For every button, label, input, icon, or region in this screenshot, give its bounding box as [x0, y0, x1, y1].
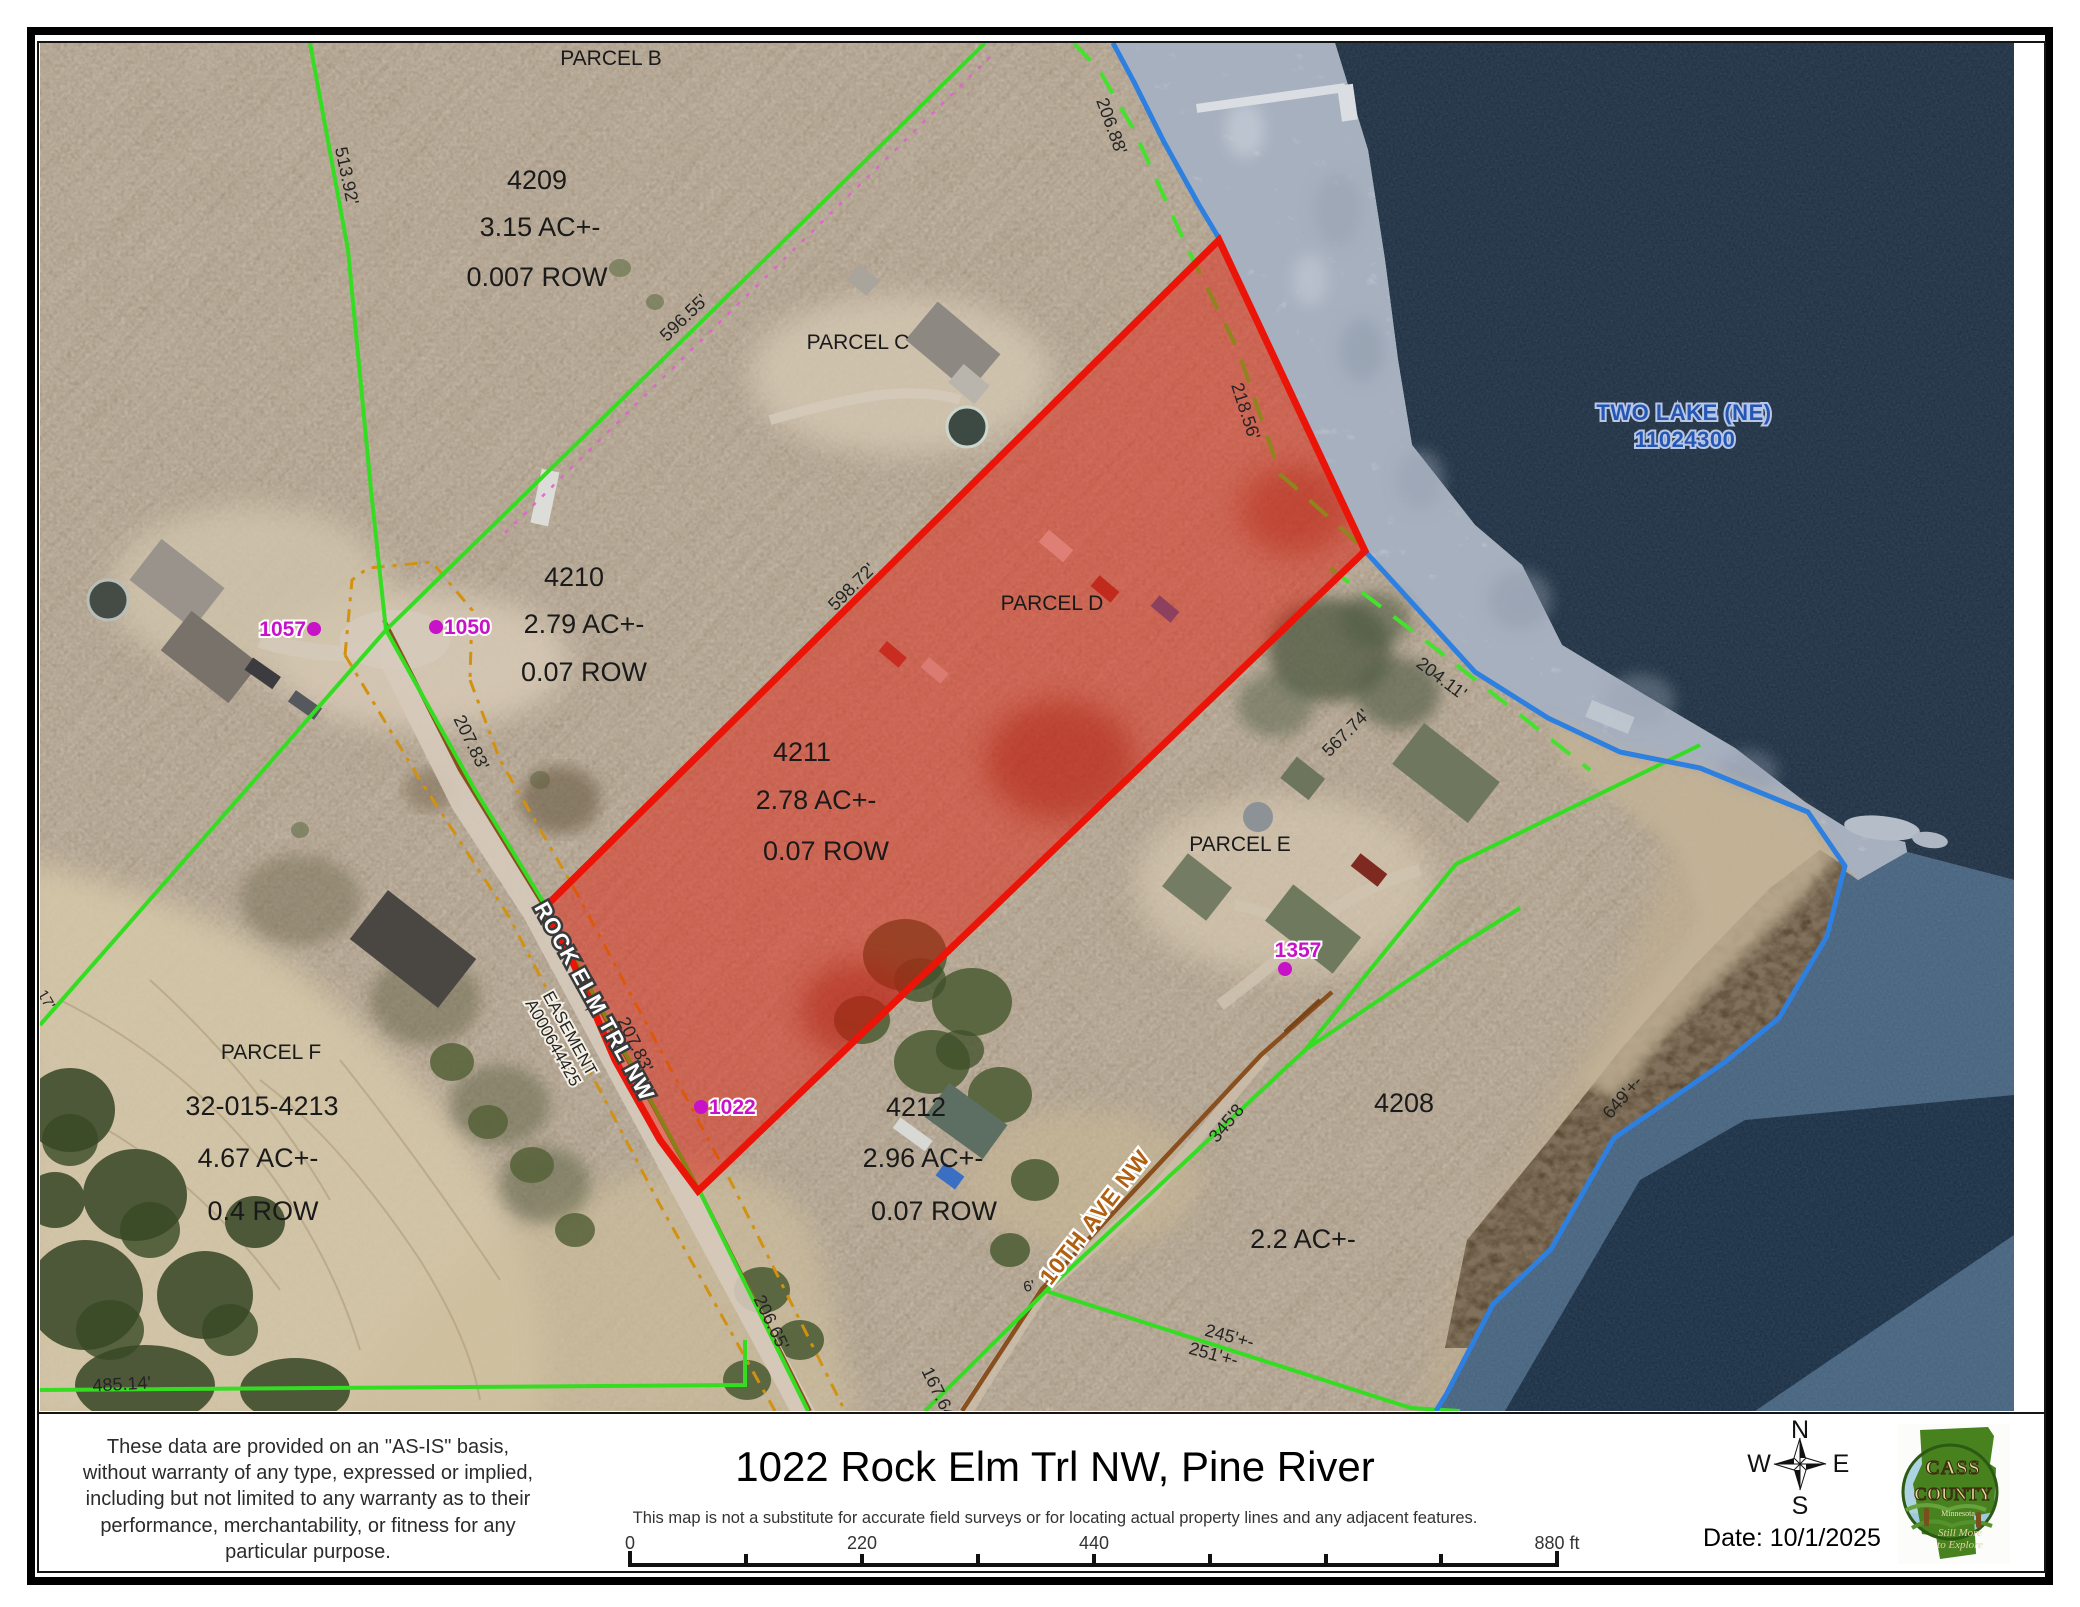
svg-text:220: 220 — [847, 1533, 877, 1553]
svg-text:3.15 AC+-: 3.15 AC+- — [480, 212, 601, 242]
svg-text:0.007 ROW: 0.007 ROW — [466, 262, 608, 292]
svg-text:2.2 AC+-: 2.2 AC+- — [1250, 1224, 1356, 1254]
svg-text:E: E — [1833, 1450, 1850, 1478]
svg-text:2.96 AC+-: 2.96 AC+- — [863, 1143, 984, 1173]
svg-text:PARCEL C: PARCEL C — [807, 331, 910, 354]
svg-text:11024300: 11024300 — [1635, 427, 1736, 452]
svg-text:2.78 AC+-: 2.78 AC+- — [756, 785, 877, 815]
svg-text:880 ft: 880 ft — [1534, 1533, 1579, 1553]
svg-text:0.07 ROW: 0.07 ROW — [871, 1196, 998, 1226]
svg-text:485.14': 485.14' — [92, 1372, 151, 1395]
svg-text:N: N — [1791, 1416, 1809, 1444]
svg-text:1357: 1357 — [1275, 939, 1322, 962]
svg-text:S: S — [1792, 1492, 1809, 1520]
svg-text:1022: 1022 — [709, 1096, 756, 1119]
svg-text:4208: 4208 — [1374, 1088, 1434, 1118]
svg-text:4.67 AC+-: 4.67 AC+- — [198, 1143, 319, 1173]
svg-text:CASS: CASS — [1925, 1457, 1980, 1479]
svg-text:PARCEL D: PARCEL D — [1001, 592, 1104, 615]
svg-text:32-015-4213: 32-015-4213 — [185, 1091, 338, 1121]
svg-text:4212: 4212 — [886, 1092, 946, 1122]
svg-text:PARCEL F: PARCEL F — [221, 1041, 321, 1064]
svg-text:2.79 AC+-: 2.79 AC+- — [524, 609, 645, 639]
svg-text:1050: 1050 — [444, 616, 491, 639]
svg-text:4211: 4211 — [773, 737, 831, 767]
svg-text:PARCEL E: PARCEL E — [1189, 833, 1291, 856]
svg-text:Still More: Still More — [1938, 1527, 1982, 1539]
svg-text:COUNTY: COUNTY — [1914, 1484, 1992, 1504]
svg-text:TWO LAKE (NE): TWO LAKE (NE) — [1596, 400, 1771, 425]
svg-text:4209: 4209 — [507, 165, 567, 195]
svg-text:1057: 1057 — [259, 618, 306, 641]
svg-text:W: W — [1747, 1450, 1771, 1478]
svg-text:0: 0 — [625, 1533, 635, 1553]
svg-text:Minnesota: Minnesota — [1941, 1509, 1975, 1518]
svg-text:0.4 ROW: 0.4 ROW — [207, 1196, 319, 1226]
svg-text:to Explore: to Explore — [1937, 1539, 1983, 1551]
svg-text:4210: 4210 — [544, 562, 604, 592]
svg-text:PARCEL B: PARCEL B — [560, 47, 662, 70]
svg-text:0.07 ROW: 0.07 ROW — [521, 657, 648, 687]
svg-text:440: 440 — [1079, 1533, 1109, 1553]
svg-text:0.07 ROW: 0.07 ROW — [763, 836, 890, 866]
